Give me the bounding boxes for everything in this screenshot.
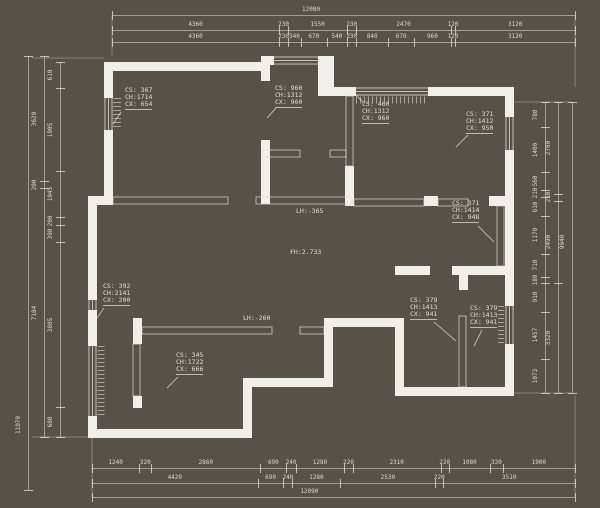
window-spec-label-2: CS: 960CH:1312CX: 960 — [275, 85, 302, 108]
dim-tick — [575, 26, 576, 35]
dim-value: 240 — [283, 475, 294, 481]
dim-tick — [40, 56, 49, 57]
level-label-lower: LH:-260 — [243, 315, 270, 322]
dim-tick — [40, 437, 49, 438]
dim-tick — [554, 393, 563, 394]
window-spec-label-5: CS: 371CH:1414CX: 948 — [452, 200, 479, 223]
dim-tick — [568, 102, 577, 103]
dim-tick — [340, 479, 341, 488]
dim-value: 3805 — [48, 318, 54, 332]
dim-line — [92, 497, 575, 498]
dim-value: 220 — [439, 460, 450, 466]
dim-value: 12080 — [302, 7, 320, 13]
dim-tick — [575, 38, 576, 47]
dim-tick — [554, 283, 563, 284]
dim-tick — [541, 216, 550, 217]
dim-line — [28, 56, 29, 490]
dim-value: 330 — [491, 460, 502, 466]
dim-value: 340 — [289, 34, 300, 40]
dim-value: 1550 — [310, 22, 324, 28]
dim-value: 120 — [448, 34, 459, 40]
dim-tick — [503, 464, 504, 473]
window-spec-label-8: CS: 379CH:1413CX: 941 — [410, 297, 437, 320]
dim-value: 210 — [546, 192, 552, 203]
dim-line — [92, 483, 575, 484]
dim-value: 690 — [265, 475, 276, 481]
dim-tick — [56, 171, 65, 172]
dim-tick — [575, 464, 576, 473]
dim-value: 320 — [140, 460, 151, 466]
dim-value: 11070 — [16, 416, 22, 434]
dim-value: 1073 — [533, 369, 539, 383]
dim-value: 2470 — [396, 22, 410, 28]
dim-value: 1170 — [533, 228, 539, 242]
dim-tick — [388, 38, 389, 47]
dim-value: 3120 — [508, 34, 522, 40]
dim-tick — [56, 225, 65, 226]
dim-tick — [541, 127, 550, 128]
dim-line — [112, 30, 575, 31]
dim-tick — [541, 393, 550, 394]
floor-height-label: FH:2.733 — [290, 249, 321, 256]
dim-value: 690 — [268, 460, 279, 466]
dim-value: 230 — [278, 34, 289, 40]
dim-tick — [24, 490, 33, 491]
dim-value: 9940 — [560, 234, 566, 248]
window-spec-label-6: CS: 392CH:2141CX: 200 — [103, 283, 130, 306]
dim-value: 710 — [533, 260, 539, 271]
dim-value: 4360 — [188, 34, 202, 40]
dim-line — [112, 15, 575, 16]
dim-value: 120 — [448, 22, 459, 28]
dim-value: 240 — [286, 460, 297, 466]
window-spec-label-3: CS: 460CH:1312CX: 960 — [362, 101, 389, 124]
dim-value: 1280 — [313, 460, 327, 466]
dim-line — [112, 42, 575, 43]
dim-value: 220 — [434, 475, 445, 481]
dim-value: 610 — [533, 201, 539, 212]
dim-value: 1080 — [462, 460, 476, 466]
dim-tick — [92, 479, 93, 488]
window-spec-label-4: CS: 371CH:1412CX: 950 — [466, 111, 493, 134]
dim-value: 390 — [48, 228, 54, 239]
dim-tick — [414, 38, 415, 47]
dim-tick — [575, 11, 576, 20]
dim-value: 780 — [533, 109, 539, 120]
dim-tick — [112, 11, 113, 20]
dim-line — [44, 56, 45, 437]
window-spec-label-1: CS: 367CH:1714CX: 654 — [125, 87, 152, 110]
dim-value: 2490 — [546, 235, 552, 249]
dim-tick — [56, 62, 65, 63]
dim-value: 12090 — [300, 489, 318, 495]
dim-tick — [554, 102, 563, 103]
dim-value: 560 — [533, 176, 539, 187]
dim-tick — [258, 479, 259, 488]
dim-tick — [56, 242, 65, 243]
dim-value: 1400 — [533, 142, 539, 156]
dim-tick — [575, 479, 576, 488]
dim-value: 7184 — [32, 305, 38, 319]
dim-tick — [92, 493, 93, 502]
dim-value: 1240 — [108, 460, 122, 466]
dim-tick — [541, 172, 550, 173]
dim-tick — [575, 493, 576, 502]
dim-value: 910 — [533, 292, 539, 303]
dim-value: 2310 — [389, 460, 403, 466]
dim-value: 1905 — [48, 123, 54, 137]
dim-value: 1900 — [532, 460, 546, 466]
dim-tick — [112, 26, 113, 35]
dim-value: 1045 — [48, 187, 54, 201]
dim-value: 3620 — [32, 111, 38, 125]
dim-tick — [327, 38, 328, 47]
dim-value: 670 — [396, 34, 407, 40]
dim-tick — [92, 464, 93, 473]
dim-tick — [56, 217, 65, 218]
dim-value: 840 — [367, 34, 378, 40]
dim-tick — [541, 277, 550, 278]
dim-value: 200 — [48, 216, 54, 227]
dim-tick — [541, 283, 550, 284]
dim-value: 230 — [346, 22, 357, 28]
dim-tick — [112, 38, 113, 47]
dim-tick — [554, 201, 563, 202]
dim-value: 3120 — [508, 22, 522, 28]
dim-value: 230 — [346, 34, 357, 40]
dim-tick — [541, 254, 550, 255]
dim-value: 610 — [48, 70, 54, 81]
dim-value: 1457 — [533, 328, 539, 342]
dim-tick — [56, 437, 65, 438]
dim-tick — [260, 464, 261, 473]
window-spec-label-9: CS: 379CH:1413CX: 941 — [470, 305, 497, 328]
dim-value: 1280 — [309, 475, 323, 481]
dim-tick — [56, 88, 65, 89]
dim-value: 200 — [32, 179, 38, 190]
floorplan-canvas: 12080 4360230155023024701203120 43602303… — [0, 0, 600, 508]
dim-value: 2860 — [199, 460, 213, 466]
dim-value: 670 — [308, 34, 319, 40]
dim-value: 4360 — [188, 22, 202, 28]
dim-tick — [40, 181, 49, 182]
dim-tick — [554, 194, 563, 195]
dim-value: 2530 — [381, 475, 395, 481]
dim-tick — [541, 359, 550, 360]
dim-value: 540 — [332, 34, 343, 40]
dim-line — [572, 102, 573, 393]
dim-tick — [541, 312, 550, 313]
dim-value: 220 — [343, 460, 354, 466]
dim-value: 180 — [533, 274, 539, 285]
dim-value: 210 — [533, 188, 539, 199]
dim-tick — [301, 38, 302, 47]
dim-value: 680 — [48, 417, 54, 428]
window-spec-label-7: CS: 345CH:1722CX: 666 — [176, 352, 203, 375]
dim-line — [60, 62, 61, 437]
dim-value: 4420 — [168, 475, 182, 481]
dim-tick — [24, 56, 33, 57]
dim-value: 230 — [278, 22, 289, 28]
dim-tick — [568, 393, 577, 394]
dim-tick — [56, 407, 65, 408]
dim-value: 960 — [427, 34, 438, 40]
dim-value: 2780 — [546, 141, 552, 155]
level-label-upper: LH:-365 — [296, 208, 323, 215]
dim-tick — [541, 102, 550, 103]
dim-tick — [151, 464, 152, 473]
dim-value: 3320 — [546, 331, 552, 345]
dim-value: 3510 — [502, 475, 516, 481]
